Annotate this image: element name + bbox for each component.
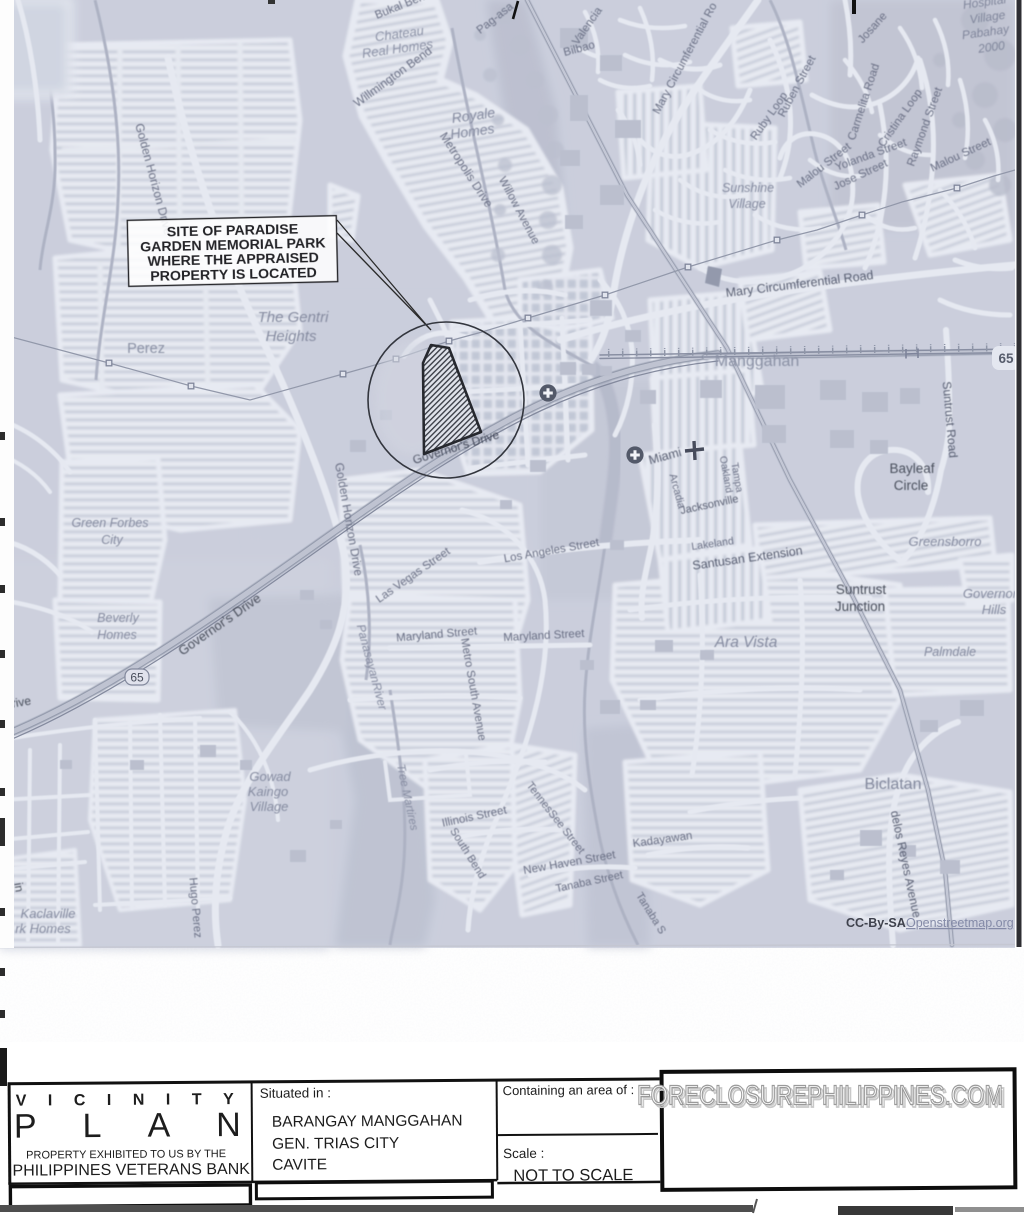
svg-text:NOT TO SCALE: NOT TO SCALE [513, 1166, 633, 1185]
svg-text:Situated in :: Situated in : [260, 1085, 331, 1101]
svg-text:CAVITE: CAVITE [272, 1156, 327, 1173]
svg-text:FORECLOSUREPHILIPPINES.COM: FORECLOSUREPHILIPPINES.COM [637, 1080, 1003, 1111]
svg-text:PHILIPPINES VETERANS BANK: PHILIPPINES VETERANS BANK [12, 1161, 250, 1180]
svg-text:PROPERTY EXHIBITED TO US BY TH: PROPERTY EXHIBITED TO US BY THE [26, 1148, 226, 1161]
svg-text:PLAN: PLAN [14, 1106, 287, 1146]
svg-text:Scale :: Scale : [503, 1146, 544, 1161]
svg-text:BARANGAY MANGGAHAN: BARANGAY MANGGAHAN [272, 1112, 463, 1130]
svg-text:GEN. TRIAS CITY: GEN. TRIAS CITY [272, 1135, 399, 1153]
svg-text:Containing an area of :: Containing an area of : [503, 1082, 635, 1098]
